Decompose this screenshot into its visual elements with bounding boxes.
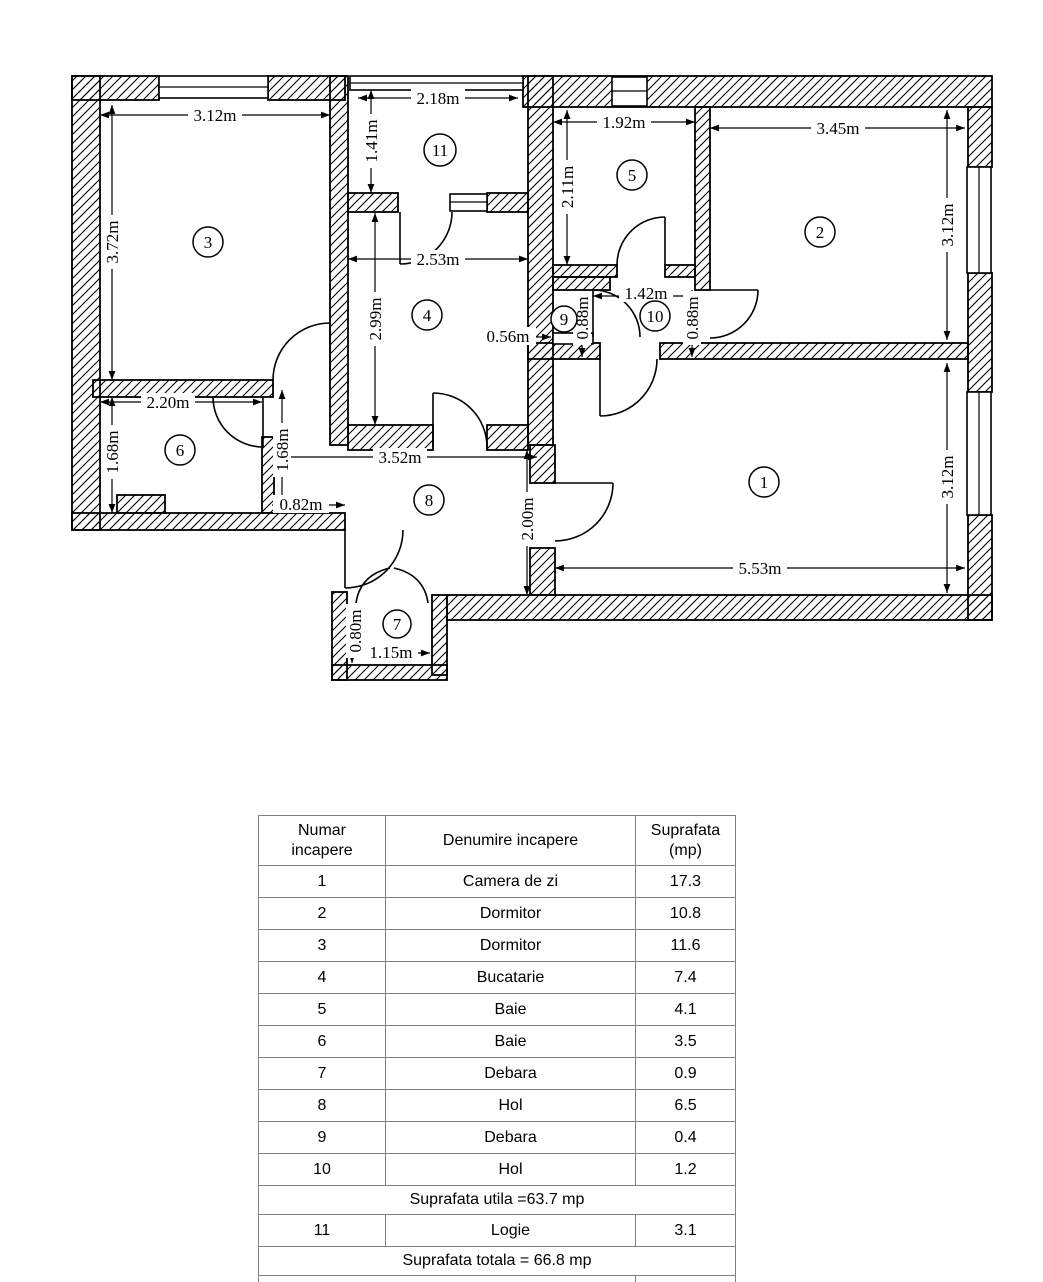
room-number: 5: [259, 994, 386, 1026]
window-vent-bath: [612, 77, 647, 106]
door-room3: [273, 323, 330, 380]
room-number: 10: [259, 1154, 386, 1186]
room-label-10: 10: [640, 301, 670, 331]
window-room3-top: [159, 76, 268, 98]
room-area: 0.4: [636, 1122, 736, 1154]
door-hall8-room1: [555, 483, 613, 541]
header-numar-incapere: Numar incapere: [259, 816, 386, 866]
svg-text:5: 5: [628, 166, 637, 185]
room-number: 7: [259, 1058, 386, 1090]
dim-logie-height: 1.41m: [362, 120, 381, 163]
dim-debara9-width: 0.56m: [487, 327, 530, 346]
room-label-4: 4: [412, 300, 442, 330]
window-logie-parapet: [350, 76, 523, 90]
room-area: 17.3: [636, 866, 736, 898]
dim-room1-height: 3.12m: [938, 456, 957, 499]
dim-room6-height-left: 1.68m: [103, 431, 122, 474]
svg-text:6: 6: [176, 441, 185, 460]
table-header-row: Numar incapere Denumire incapere Suprafa…: [259, 816, 736, 866]
room-area: 10.8: [636, 898, 736, 930]
table-row: 10 Hol 1.2: [259, 1154, 736, 1186]
room-label-8: 8: [414, 485, 444, 515]
door-hall10-room1: [600, 359, 657, 416]
table-row: 5 Baie 4.1: [259, 994, 736, 1026]
door-room2: [710, 290, 758, 338]
svg-text:10: 10: [647, 307, 664, 326]
table-row: 6 Baie 3.5: [259, 1026, 736, 1058]
table-row: 4 Bucatarie 7.4: [259, 962, 736, 994]
areas-table: Numar incapere Denumire incapere Suprafa…: [258, 815, 736, 1282]
dim-hall8-height: 2.00m: [518, 498, 537, 541]
room-area: 3.5: [636, 1026, 736, 1058]
room-label-6: 6: [165, 435, 195, 465]
dim-room5-height: 2.11m: [558, 166, 577, 208]
table-row: 3 Dormitor 11.6: [259, 930, 736, 962]
door-entrance: [345, 530, 403, 588]
room-number: 4: [259, 962, 386, 994]
room-area: 1.2: [636, 1154, 736, 1186]
dim-debara7-width: 1.15m: [370, 643, 413, 662]
dim-room6-height-right: 1.68m: [273, 429, 292, 472]
header-denumire-incapere: Denumire incapere: [386, 816, 636, 866]
footer-row: Data: [259, 1276, 736, 1282]
room-number: 8: [259, 1090, 386, 1122]
room-name: Hol: [386, 1090, 636, 1122]
room-name: Camera de zi: [386, 866, 636, 898]
table-row: 1 Camera de zi 17.3: [259, 866, 736, 898]
room-label-1: 1: [749, 467, 779, 497]
door-kitchen: [433, 393, 487, 447]
room-name: Dormitor: [386, 898, 636, 930]
dim-room3-height: 3.72m: [103, 221, 122, 264]
door-room6: [213, 397, 263, 447]
room-number: 3: [259, 930, 386, 962]
room-label-7: 7: [383, 610, 411, 638]
window-room2: [967, 167, 991, 273]
summary-totala-row: Suprafata totala = 66.8 mp: [259, 1247, 736, 1276]
room-label-9: 9: [551, 306, 577, 332]
page: 3.12m 3.72m 2.18m 1.41m 1.92m 2.11m 3.45…: [0, 0, 1043, 1282]
room-area: 4.1: [636, 994, 736, 1026]
walls: [72, 76, 992, 680]
svg-text:4: 4: [423, 306, 432, 325]
room-name: Dormitor: [386, 930, 636, 962]
room-number: 1: [259, 866, 386, 898]
room-area: 3.1: [636, 1215, 736, 1247]
dim-kitchen-height: 2.99m: [366, 298, 385, 341]
room-number: 11: [259, 1215, 386, 1247]
room-area: 6.5: [636, 1090, 736, 1122]
room-name: Baie: [386, 1026, 636, 1058]
dim-hall10-width: 1.42m: [625, 284, 668, 303]
room-area: 7.4: [636, 962, 736, 994]
room-name: Hol: [386, 1154, 636, 1186]
room-area: 0.9: [636, 1058, 736, 1090]
footer-empty-cell: [259, 1276, 636, 1282]
dim-room1-width: 5.53m: [739, 559, 782, 578]
dim-room6-width: 2.20m: [147, 393, 190, 412]
svg-text:1: 1: [760, 473, 769, 492]
room-label-11: 11: [424, 134, 456, 166]
dim-kitchen-width: 2.53m: [417, 250, 460, 269]
room-number: 9: [259, 1122, 386, 1154]
svg-text:2: 2: [816, 223, 825, 242]
room-name: Debara: [386, 1122, 636, 1154]
suprafata-totala: Suprafata totala = 66.8 mp: [259, 1247, 736, 1276]
footer-data-label: Data: [636, 1276, 736, 1282]
svg-text:11: 11: [432, 141, 448, 160]
room-label-5: 5: [617, 160, 647, 190]
door-debara7-double: [356, 568, 428, 603]
summary-utila-row: Suprafata utila =63.7 mp: [259, 1186, 736, 1215]
dim-hall10-height: 0.88m: [683, 297, 702, 340]
dim-entry-width: 0.82m: [280, 495, 323, 514]
room-name: Baie: [386, 994, 636, 1026]
room-name: Logie: [386, 1215, 636, 1247]
table-row: 8 Hol 6.5: [259, 1090, 736, 1122]
room-name: Bucatarie: [386, 962, 636, 994]
table-row-logie: 11 Logie 3.1: [259, 1215, 736, 1247]
floor-plan: 3.12m 3.72m 2.18m 1.41m 1.92m 2.11m 3.45…: [0, 0, 1043, 710]
table-row: 2 Dormitor 10.8: [259, 898, 736, 930]
dim-room2-height: 3.12m: [938, 204, 957, 247]
room-number: 6: [259, 1026, 386, 1058]
room-label-2: 2: [805, 217, 835, 247]
table-row: 9 Debara 0.4: [259, 1122, 736, 1154]
room-label-3: 3: [193, 227, 223, 257]
dim-room2-width: 3.45m: [817, 119, 860, 138]
svg-text:8: 8: [425, 491, 434, 510]
suprafata-utila: Suprafata utila =63.7 mp: [259, 1186, 736, 1215]
table-row: 7 Debara 0.9: [259, 1058, 736, 1090]
window-room1: [967, 392, 991, 515]
header-suprafata: Suprafata (mp): [636, 816, 736, 866]
svg-text:9: 9: [560, 310, 569, 329]
dim-debara7-height: 0.80m: [346, 610, 365, 653]
dim-logie-width: 2.18m: [417, 89, 460, 108]
room-name: Debara: [386, 1058, 636, 1090]
dim-room5-width: 1.92m: [603, 113, 646, 132]
dim-hall8-width: 3.52m: [379, 448, 422, 467]
dim-room3-width: 3.12m: [194, 106, 237, 125]
svg-text:7: 7: [393, 615, 402, 634]
door-room5: [617, 217, 665, 265]
room-number: 2: [259, 898, 386, 930]
room-area: 11.6: [636, 930, 736, 962]
window-logie-kitchen: [450, 194, 487, 211]
svg-text:3: 3: [204, 233, 213, 252]
